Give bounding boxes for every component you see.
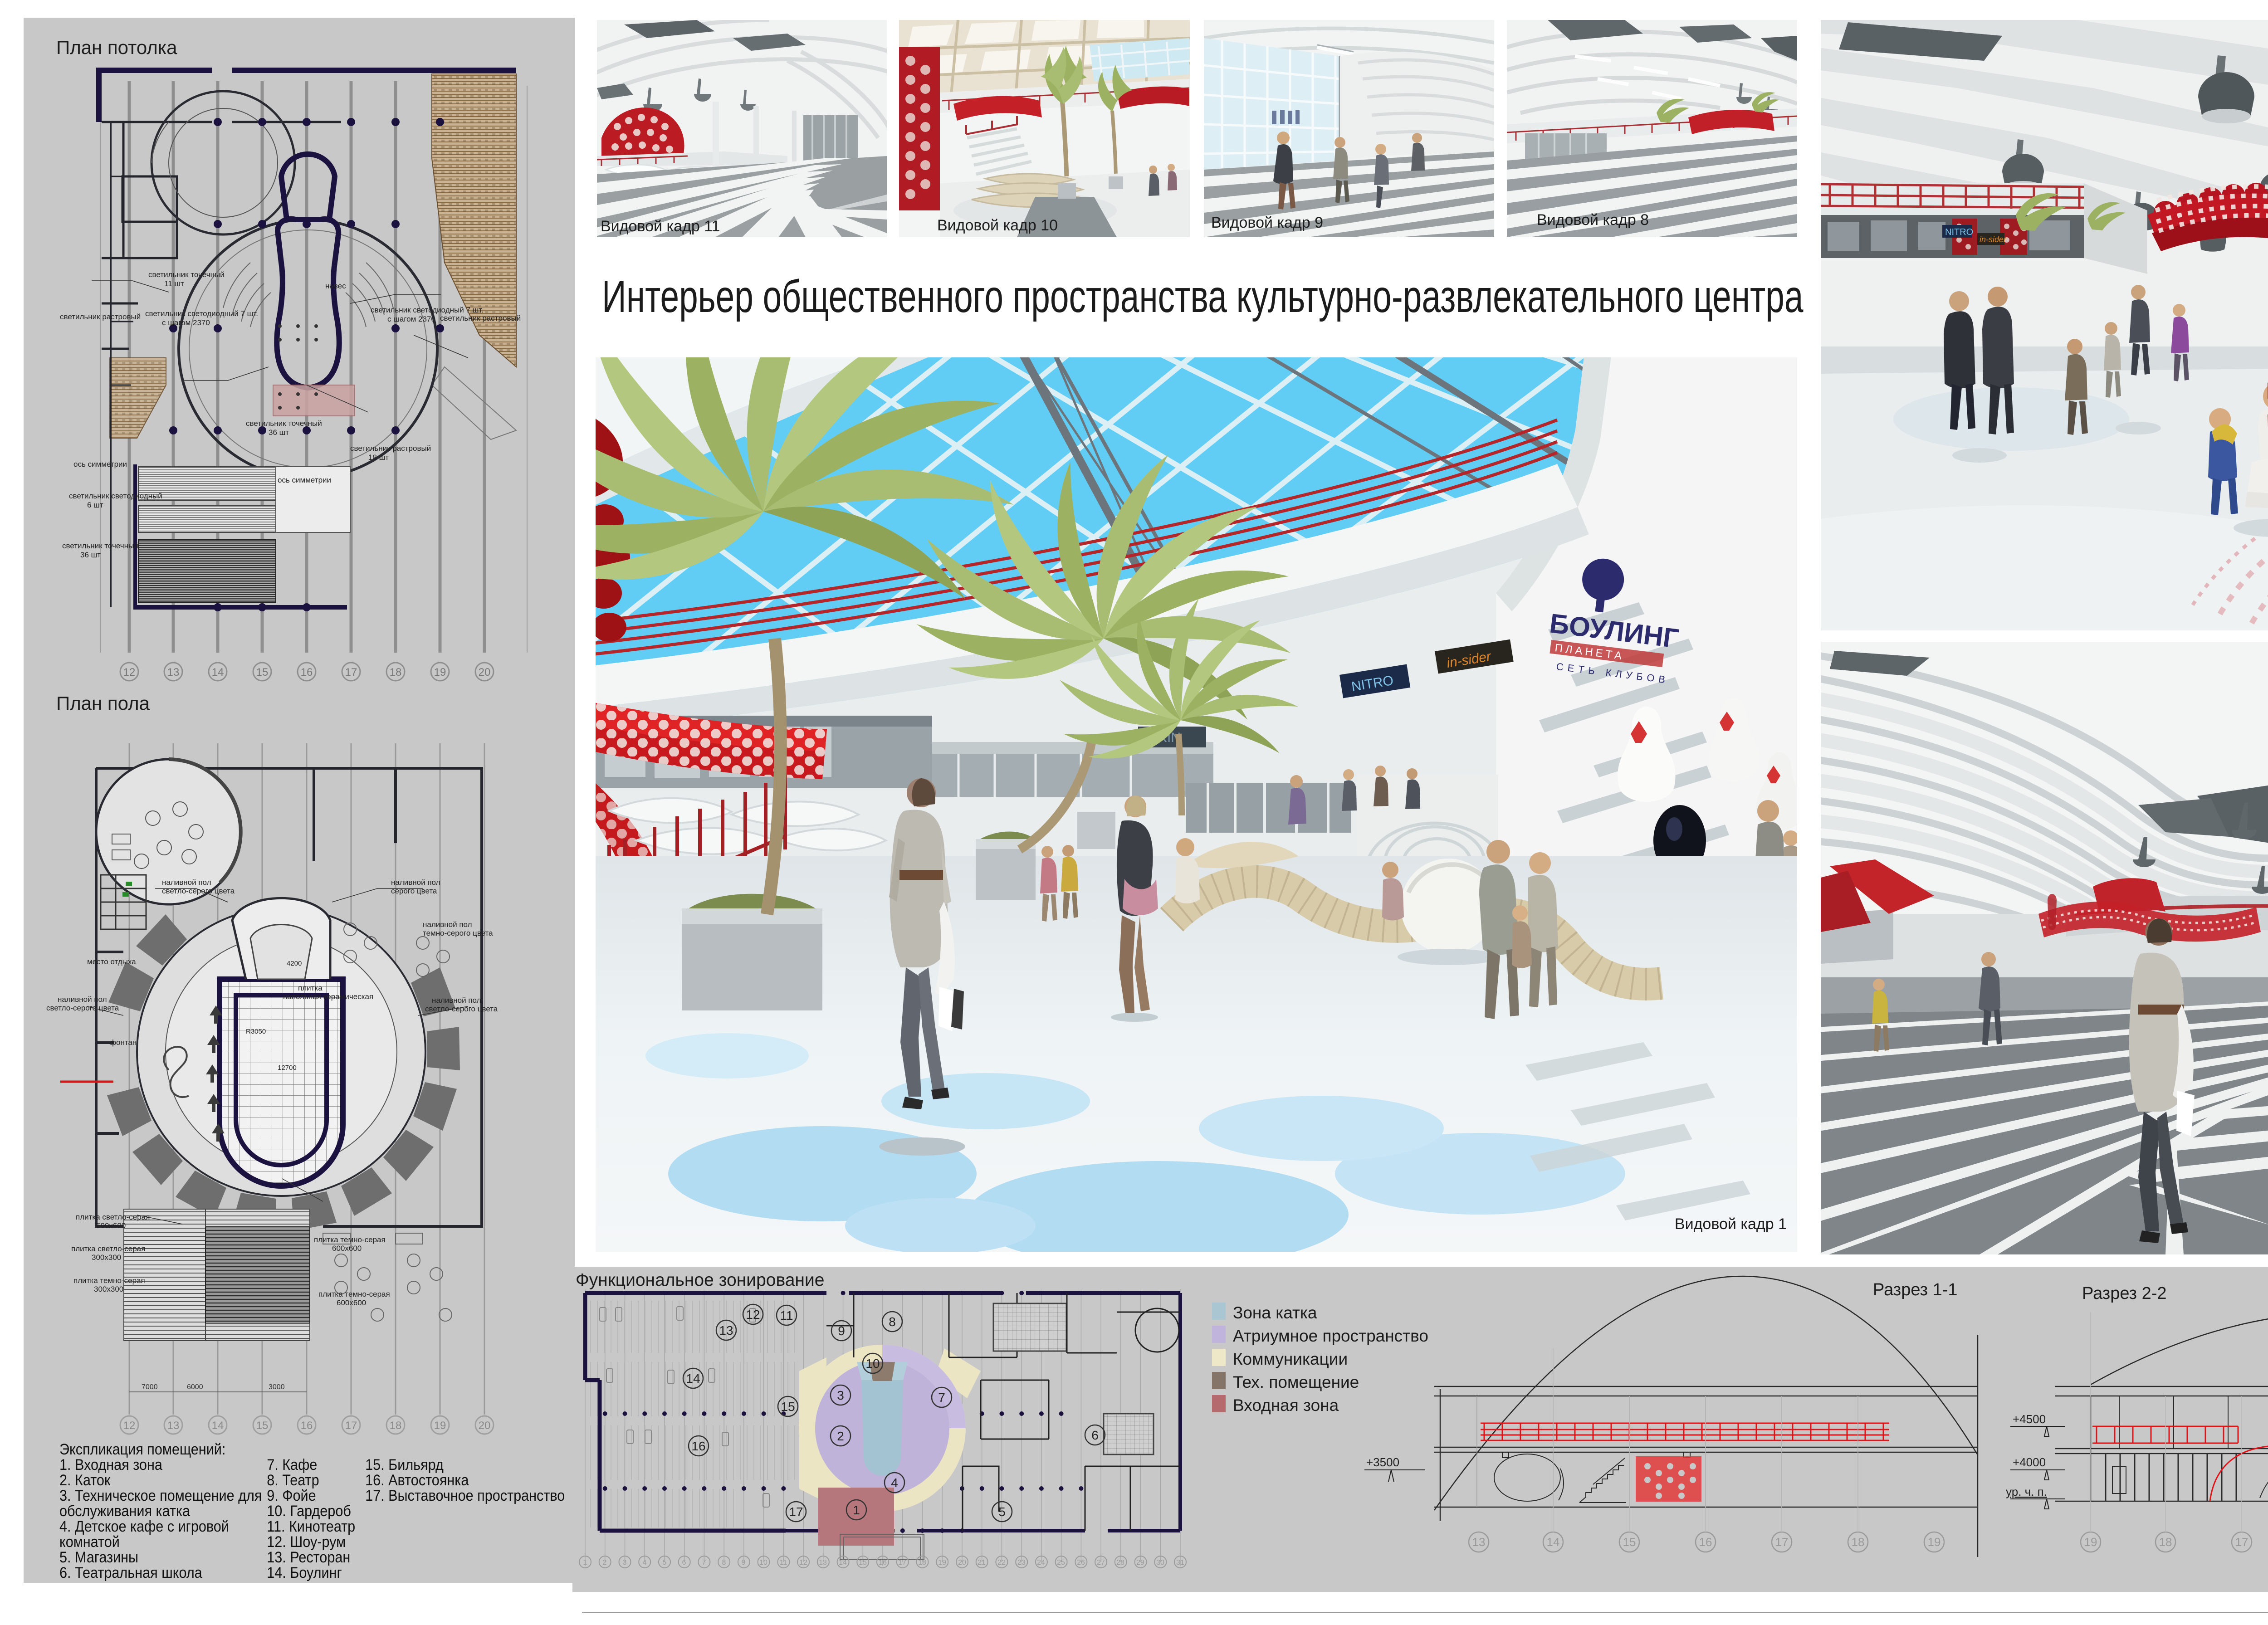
svg-text:наливной пол: наливной пол [162,878,211,887]
svg-text:16: 16 [301,666,313,678]
svg-text:светильник точечный: светильник точечный [246,419,322,428]
svg-text:напольная керамическая: напольная керамическая [283,992,373,1001]
svg-text:19: 19 [434,666,446,678]
svg-text:14: 14 [1547,1535,1560,1549]
svg-text:27: 27 [1097,1559,1105,1566]
svg-text:13: 13 [1472,1535,1486,1549]
svg-text:наливной пол: наливной пол [432,996,481,1005]
svg-text:9: 9 [742,1559,746,1566]
svg-text:26: 26 [1077,1559,1085,1566]
svg-text:6: 6 [1091,1428,1099,1442]
svg-text:7000: 7000 [142,1383,158,1391]
svg-text:5: 5 [663,1559,667,1566]
svg-text:13: 13 [167,666,180,678]
svg-text:15: 15 [256,1420,269,1432]
svg-text:20: 20 [479,666,491,678]
svg-text:6 шт: 6 шт [87,501,103,509]
svg-text:19: 19 [1928,1535,1941,1549]
svg-text:навес: навес [325,282,346,290]
svg-text:ось симметрии: ось симметрии [278,476,331,484]
svg-text:19: 19 [2084,1535,2097,1549]
svg-text:наливной пол: наливной пол [58,995,107,1004]
svg-text:2: 2 [837,1429,844,1443]
svg-text:12700: 12700 [278,1064,297,1072]
svg-text:15: 15 [859,1559,867,1566]
svg-text:20: 20 [958,1559,966,1566]
svg-text:17: 17 [898,1559,906,1566]
svg-text:16: 16 [879,1559,887,1566]
svg-text:4200: 4200 [287,960,302,967]
svg-text:19: 19 [938,1559,946,1566]
svg-text:6: 6 [682,1559,686,1566]
svg-text:4: 4 [643,1559,647,1566]
svg-text:светло-серого цвета: светло-серого цвета [162,887,235,895]
svg-text:светильник растровый: светильник растровый [440,314,521,322]
svg-text:плитка темно-серая: плитка темно-серая [314,1235,386,1244]
svg-text:светильник растровый: светильник растровый [60,312,141,321]
svg-text:1: 1 [583,1559,587,1566]
svg-text:светильник точечный: светильник точечный [62,542,138,550]
svg-text:+3500: +3500 [1366,1455,1399,1469]
svg-text:ур. ч. п.: ур. ч. п. [2006,1485,2047,1498]
svg-text:5: 5 [998,1505,1006,1519]
svg-text:16: 16 [301,1420,313,1432]
svg-text:600х600: 600х600 [96,1221,126,1230]
svg-text:16: 16 [691,1439,705,1453]
svg-text:19: 19 [434,1420,446,1432]
svg-text:светло-серого цвета: светло-серого цвета [425,1005,498,1013]
svg-text:7: 7 [702,1559,706,1566]
svg-text:14: 14 [212,1420,224,1432]
svg-text:12: 12 [123,1420,136,1432]
svg-text:R3050: R3050 [246,1028,266,1035]
svg-text:светильник точечный: светильник точечный [148,270,225,279]
svg-text:светильник светодиодный: светильник светодиодный [69,492,162,500]
svg-text:+4500: +4500 [2013,1412,2046,1426]
svg-text:17: 17 [789,1505,803,1519]
svg-text:наливной пол: наливной пол [423,920,472,929]
svg-text:место отдыха: место отдыха [87,957,136,966]
svg-text:18: 18 [390,1420,402,1432]
svg-text:14: 14 [839,1559,847,1566]
svg-text:36 шт: 36 шт [269,428,289,437]
svg-text:11: 11 [780,1559,787,1566]
svg-text:ось симметрии: ось симметрии [73,460,127,468]
svg-text:темно-серого цвета: темно-серого цвета [423,929,493,937]
svg-text:13: 13 [719,1323,733,1337]
svg-text:300х300: 300х300 [94,1285,123,1293]
svg-text:12: 12 [123,666,136,678]
svg-text:600х600: 600х600 [332,1244,362,1253]
svg-text:8: 8 [722,1559,726,1566]
svg-text:28: 28 [1116,1559,1124,1566]
svg-text:6000: 6000 [187,1383,203,1391]
svg-text:NITRO: NITRO [1945,227,1973,237]
svg-text:фонтан: фонтан [110,1038,137,1047]
svg-text:16: 16 [1699,1535,1712,1549]
svg-text:21: 21 [978,1559,986,1566]
svg-text:наливной пол: наливной пол [391,878,440,887]
svg-text:с шагом 2370: с шагом 2370 [387,315,435,323]
svg-text:30: 30 [1156,1559,1164,1566]
svg-text:17: 17 [345,666,357,678]
svg-text:18: 18 [390,666,402,678]
svg-text:12: 12 [746,1308,760,1322]
svg-text:15: 15 [1623,1535,1636,1549]
svg-text:плитка темно-серая: плитка темно-серая [73,1276,145,1285]
svg-text:3: 3 [623,1559,627,1566]
svg-text:18: 18 [1852,1535,1865,1549]
svg-text:25: 25 [1057,1559,1065,1566]
svg-text:13: 13 [819,1559,827,1566]
svg-text:светильник растровый: светильник растровый [350,444,431,453]
svg-text:серого цвета: серого цвета [391,887,437,895]
svg-text:36 шт: 36 шт [80,551,101,559]
svg-text:плитка светло-серая: плитка светло-серая [71,1244,145,1253]
svg-text:7: 7 [938,1391,945,1405]
svg-text:8: 8 [889,1315,896,1329]
svg-text:17: 17 [2235,1535,2248,1549]
svg-text:600х600: 600х600 [337,1298,366,1307]
svg-text:3000: 3000 [269,1383,285,1391]
svg-text:с шагом 2370: с шагом 2370 [162,318,210,327]
svg-text:4: 4 [891,1476,898,1490]
svg-text:плитка: плитка [298,984,323,992]
svg-text:18: 18 [918,1559,926,1566]
svg-text:15: 15 [256,666,269,678]
svg-text:1: 1 [853,1503,860,1517]
svg-text:плитка светло-серая: плитка светло-серая [76,1213,150,1221]
svg-text:29: 29 [1136,1559,1144,1566]
svg-text:18 шт: 18 шт [368,453,389,462]
svg-text:10: 10 [865,1357,880,1371]
svg-text:9: 9 [838,1324,845,1338]
svg-text:300х300: 300х300 [92,1253,121,1262]
svg-text:23: 23 [1017,1559,1026,1566]
svg-text:11: 11 [780,1308,793,1322]
svg-text:светильник светодиодный 7 шт.: светильник светодиодный 7 шт. [371,306,484,314]
svg-text:20: 20 [479,1420,491,1432]
svg-text:13: 13 [167,1420,180,1432]
svg-text:22: 22 [997,1559,1006,1566]
svg-text:12: 12 [799,1559,807,1566]
svg-text:in-sider: in-sider [1980,235,2007,244]
svg-text:18: 18 [2159,1535,2172,1549]
svg-text:светло-серого цвета: светло-серого цвета [46,1004,119,1012]
svg-text:светильник светодиодный 7 шт.: светильник светодиодный 7 шт. [145,309,258,318]
svg-text:плитка темно-серая: плитка темно-серая [318,1290,390,1298]
svg-text:10: 10 [759,1559,767,1566]
svg-text:15: 15 [781,1400,795,1414]
svg-text:17: 17 [1775,1535,1789,1549]
svg-text:31: 31 [1176,1559,1184,1566]
svg-text:2: 2 [603,1559,607,1566]
svg-text:17: 17 [345,1420,357,1432]
svg-text:11 шт: 11 шт [164,279,184,288]
svg-text:+4000: +4000 [2013,1455,2046,1469]
svg-text:24: 24 [1037,1559,1045,1566]
svg-text:3: 3 [837,1388,844,1402]
svg-text:14: 14 [212,666,224,678]
svg-text:14: 14 [686,1371,700,1386]
